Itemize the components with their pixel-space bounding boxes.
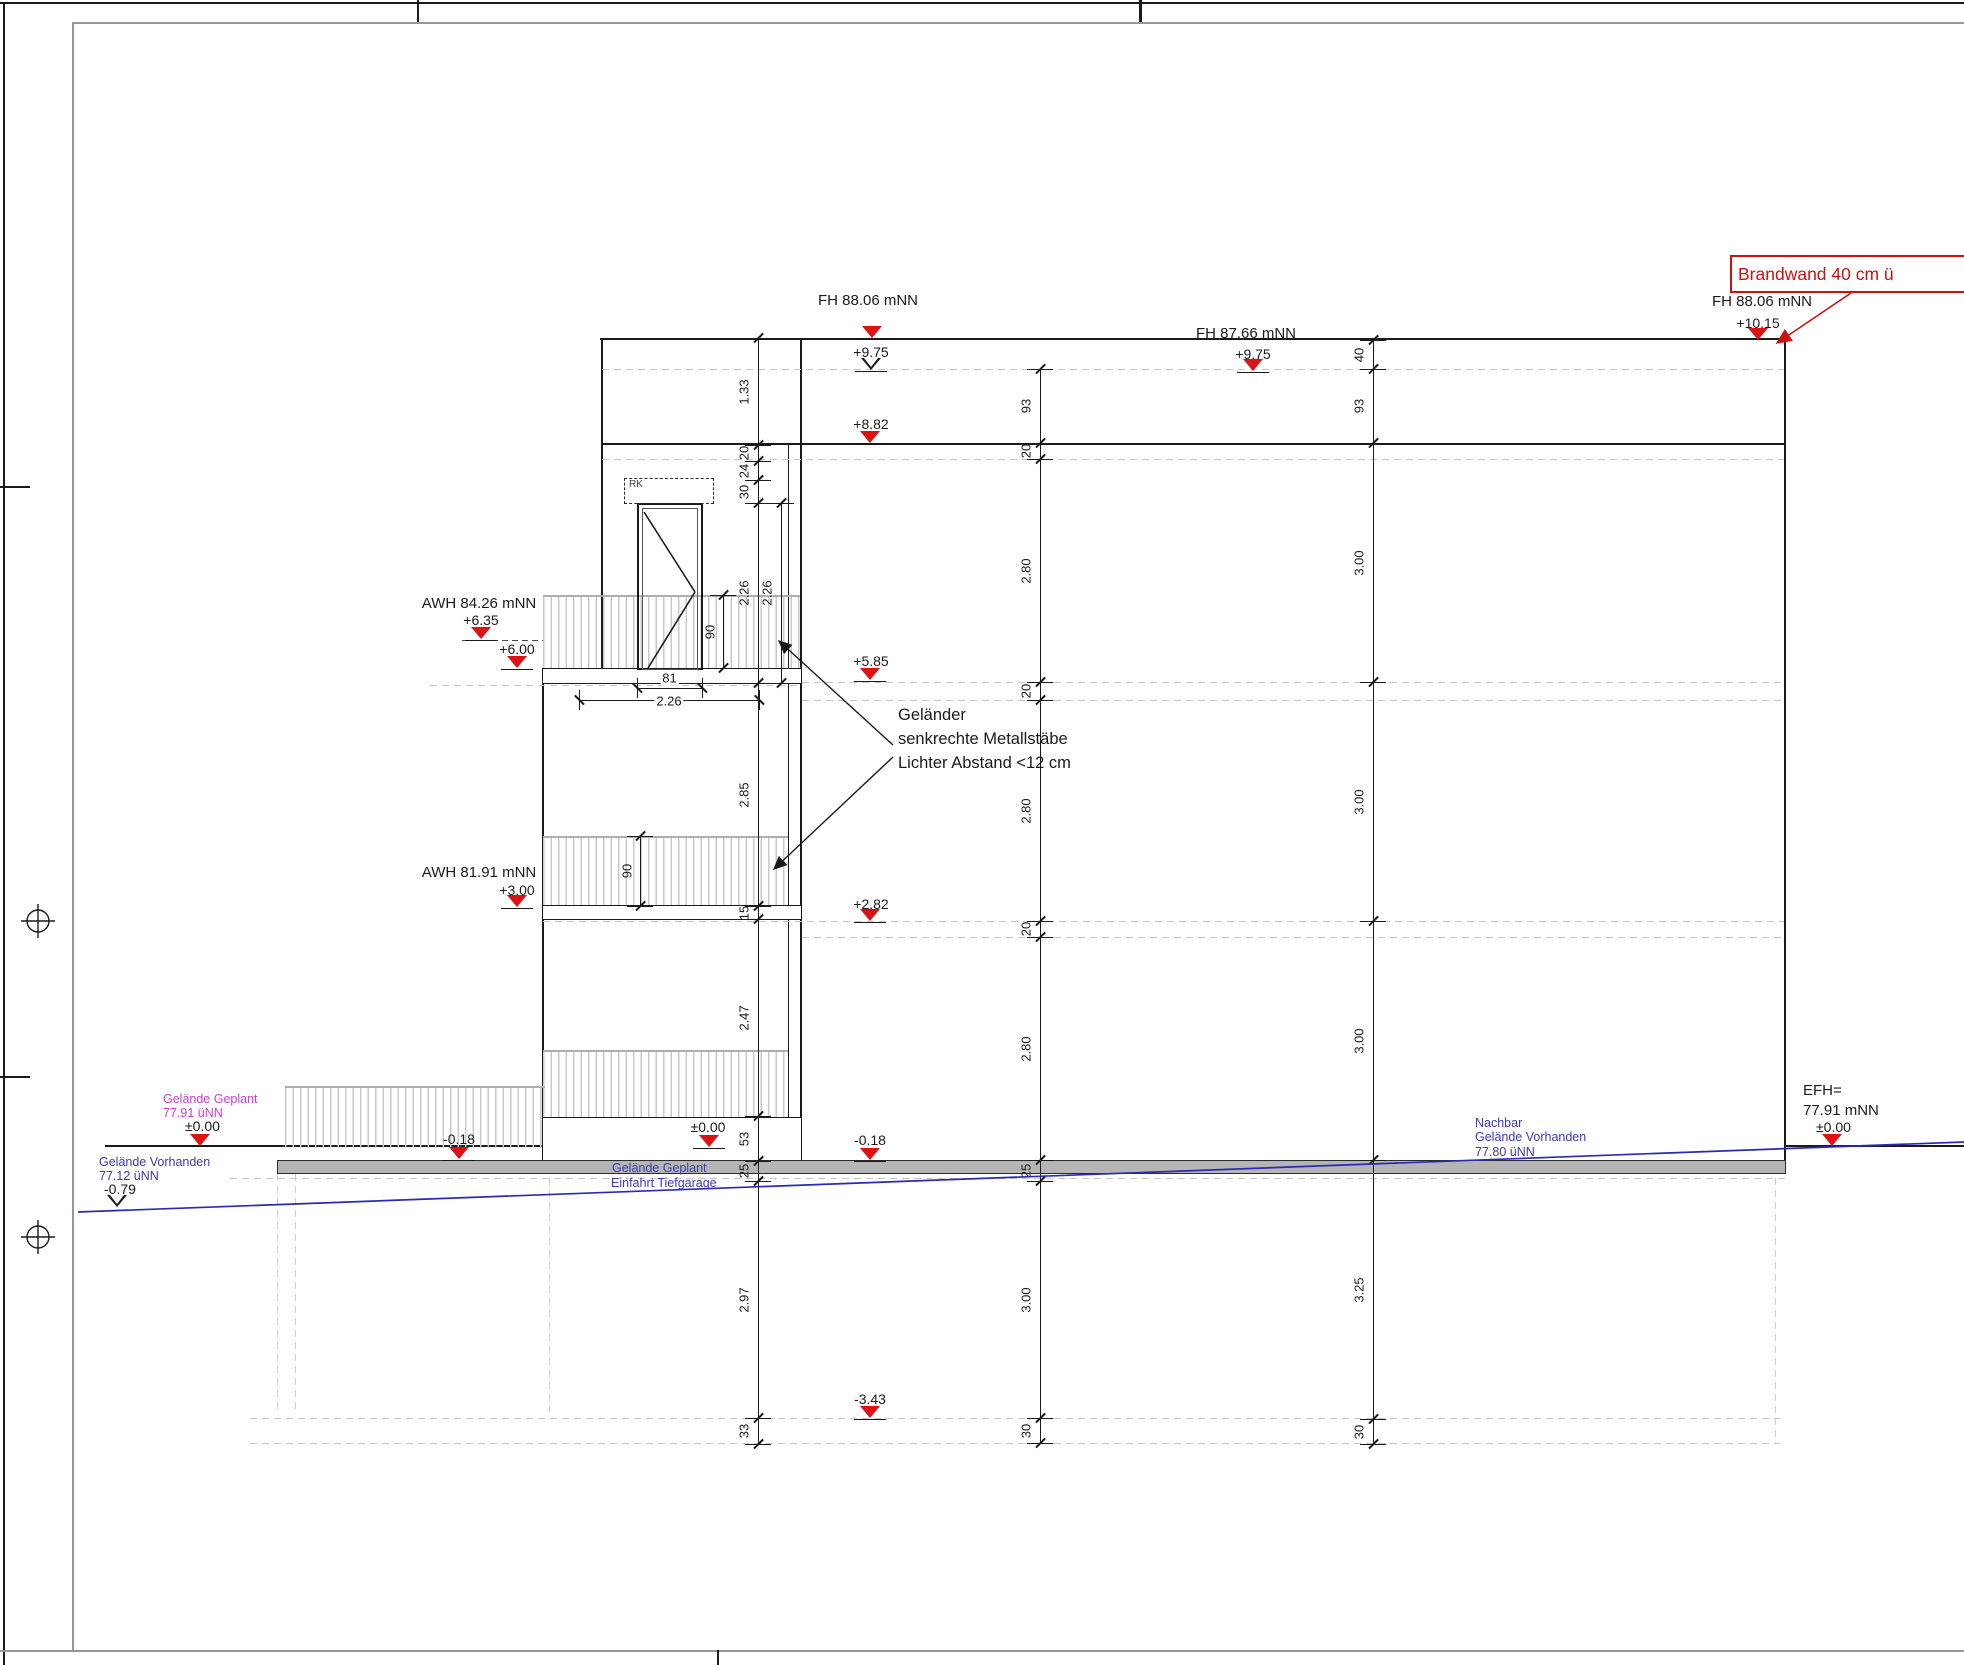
section-drawing-canvas: RK Brandwand 40 cm ü — [0, 0, 1964, 1665]
dim-chain-right-label: 30 — [1352, 1424, 1367, 1438]
level-marker-underline — [465, 640, 497, 642]
dim-chain-middle-label: 20 — [1019, 922, 1034, 936]
mid-balcony-slab — [542, 905, 802, 920]
railing-height-dim-lower-line — [640, 836, 641, 906]
level-marker-underline — [501, 669, 533, 671]
dim-chain-middle-label: 3.00 — [1019, 1287, 1034, 1312]
railing-note-line1: Geländer — [898, 706, 966, 725]
dim-chain-right-label: 93 — [1352, 399, 1367, 413]
dim-chain-middle-label: 30 — [1019, 1423, 1034, 1437]
level-value: +2.82 — [853, 896, 888, 912]
railing-height-dim-upper-line — [723, 595, 724, 668]
balcony-width-dim-ext — [759, 690, 760, 710]
level-label-fh-8766: FH 87.66 mNN — [1196, 325, 1296, 342]
door-width-dim-line — [637, 688, 702, 689]
brandwand-label: Brandwand 40 cm ü — [1738, 264, 1894, 284]
efh-label: EFH= — [1803, 1082, 1842, 1099]
roller-shutter-label: RK — [629, 479, 643, 490]
dim-chain-middle-label: 2.80 — [1019, 798, 1034, 823]
level-value: +5.85 — [853, 653, 888, 669]
efh-elevation: 77.91 mNN — [1803, 1102, 1879, 1119]
roof-line — [600, 338, 1786, 340]
railing-note-leader-2 — [774, 757, 893, 869]
level-marker-triangle — [860, 431, 880, 443]
neighbor-elevation: 77.80 üNN — [1475, 1145, 1535, 1159]
level-value: -0.18 — [443, 1131, 475, 1147]
terrain-planned-label: Gelände Geplant — [163, 1092, 258, 1106]
door-width-dim-ext — [702, 678, 703, 698]
level-dash-282 — [543, 921, 1784, 922]
neighbor-label-line2: Gelände Vorhanden — [1475, 1130, 1586, 1144]
dim-chain-left-label: 2.26 — [737, 580, 752, 605]
level-label-awh-8191: AWH 81.91 mNN — [422, 864, 536, 881]
dim-chain-middle-label: 93 — [1019, 399, 1034, 413]
level-value: ±0.00 — [691, 1119, 726, 1135]
sheet-frame-bottom — [0, 1650, 1964, 1652]
level-value: +10.15 — [1736, 315, 1779, 331]
dim-chain-left-2-label: 2.26 — [760, 580, 775, 605]
garden-fence — [285, 1086, 545, 1148]
level-marker-underline — [693, 1148, 725, 1150]
dim-chain-right-line — [1373, 340, 1374, 1444]
dim-chain-left-label: 2.97 — [737, 1287, 752, 1312]
level-label-fh-8806-right: FH 88.06 mNN — [1712, 293, 1812, 310]
dim-chain-left-label: 53 — [737, 1131, 752, 1145]
level-marker-triangle — [860, 668, 880, 680]
level-marker-triangle — [449, 1147, 469, 1159]
dim-chain-middle-line — [1040, 369, 1041, 1443]
dim-chain-left-label: 2.47 — [737, 1005, 752, 1030]
dim-chain-middle-label: 25 — [1019, 1163, 1034, 1177]
level-marker-underline — [854, 1161, 886, 1163]
balcony-door-frame — [642, 508, 698, 670]
level-marker-triangle — [862, 326, 882, 338]
railing-height-dim-upper-label: 90 — [703, 624, 718, 638]
level-value: ±0.00 — [185, 1118, 220, 1134]
roller-shutter-box: RK — [624, 478, 714, 504]
terrace-slab — [542, 1117, 802, 1161]
dim-chain-middle-label: 20 — [1019, 444, 1034, 458]
neighbor-label-line1: Nachbar — [1475, 1116, 1522, 1130]
level-dash-balcony1 — [430, 685, 802, 686]
level-marker-underline — [855, 371, 887, 373]
page-border-top — [0, 2, 1964, 4]
level-value: +9.75 — [853, 344, 888, 360]
fold-mark-left-2 — [0, 1076, 30, 1078]
level-marker-underline — [854, 1419, 886, 1421]
level-marker-triangle — [471, 627, 491, 639]
basement-right-wall-dash — [1775, 1178, 1776, 1443]
level-marker-underline — [854, 922, 886, 924]
dim-chain-left-label: 20 — [737, 446, 752, 460]
level-value: +9.75 — [1235, 346, 1270, 362]
railing-note-line2: senkrechte Metallstäbe — [898, 730, 1068, 749]
door-width-dim-label: 81 — [660, 671, 678, 686]
sheet-frame-top — [72, 22, 1964, 24]
registration-cross-1 — [21, 904, 55, 938]
mid-balcony-railing — [543, 836, 788, 908]
dim-chain-left-label: 25 — [737, 1164, 752, 1178]
level-dash-262 — [802, 937, 1784, 938]
level-dash-565 — [802, 700, 1784, 701]
ground-line-right — [1786, 1145, 1964, 1147]
dim-chain-right-label: 3.00 — [1352, 789, 1367, 814]
balcony-width-dim-label: 2.26 — [654, 694, 683, 709]
dim-chain-right-label: 40 — [1352, 347, 1367, 361]
level-marker-underline — [1237, 372, 1269, 374]
level-value: -0.18 — [854, 1132, 886, 1148]
dim-chain-left-label: 24 — [737, 463, 752, 477]
dim-chain-right-label: 3.25 — [1352, 1277, 1367, 1302]
level-value: +8.82 — [853, 416, 888, 432]
balcony-width-dim-ext — [579, 690, 580, 710]
dim-chain-left-label: 2.85 — [737, 782, 752, 807]
overlay-lines — [0, 0, 1964, 1665]
terrain-existing-label: Gelände Vorhanden — [99, 1155, 210, 1169]
building-right-wall — [1784, 339, 1786, 1161]
level-value: -3.43 — [854, 1391, 886, 1407]
garage-wall-dash-1 — [277, 1174, 278, 1412]
driveway-label-line2: Einfahrt Tiefgarage — [611, 1176, 717, 1190]
garage-wall-dash-3 — [549, 1178, 550, 1412]
level-marker-underline — [854, 681, 886, 683]
level-marker-triangle — [507, 656, 527, 668]
railing-note-line3: Lichter Abstand <12 cm — [898, 754, 1071, 773]
level-dash-862 — [602, 459, 1784, 460]
attic-ceiling-line — [602, 443, 1784, 445]
level-value: +6.35 — [463, 612, 498, 628]
level-dash-585 — [802, 682, 1784, 683]
level-marker-triangle — [190, 1134, 210, 1146]
fold-mark-bottom — [717, 1650, 719, 1665]
registration-cross-2 — [21, 1220, 55, 1254]
dim-chain-right-label: 3.00 — [1352, 1028, 1367, 1053]
dim-chain-left-label: 30 — [737, 484, 752, 498]
foundation-bottom-dash — [250, 1443, 1780, 1444]
dim-chain-middle-label: 20 — [1019, 684, 1034, 698]
sheet-frame-left — [72, 22, 74, 1651]
level-marker-underline — [501, 908, 533, 910]
fold-mark-top-2 — [1139, 0, 1142, 22]
level-marker-underline — [443, 1160, 475, 1162]
door-width-dim-ext — [637, 678, 638, 698]
level-label-fh-8806-center: FH 88.06 mNN — [818, 292, 918, 309]
basement-top-dash — [230, 1178, 1786, 1179]
dim-chain-left-label: 1.33 — [737, 379, 752, 404]
garage-wall-dash-2 — [295, 1174, 296, 1412]
dim-chain-left-2-line — [781, 503, 782, 683]
level-value: ±0.00 — [1816, 1119, 1851, 1135]
driveway-label-line1: Gelände Geplant — [612, 1161, 707, 1175]
level-value: +6.00 — [499, 641, 534, 657]
level-label-awh-8426: AWH 84.26 mNN — [422, 595, 536, 612]
level-dash-975 — [602, 369, 1784, 370]
dim-chain-middle-label: 2.80 — [1019, 558, 1034, 583]
building-middle-wall — [800, 340, 802, 1161]
basement-floor-dash — [250, 1418, 1780, 1419]
level-marker-triangle — [1822, 1134, 1842, 1146]
level-value: -0.79 — [104, 1181, 136, 1197]
railing-height-dim-lower-label: 90 — [620, 864, 635, 878]
inner-wall-line — [788, 443, 789, 1118]
dim-chain-left-label: 15 — [737, 905, 752, 919]
page-border-left — [3, 2, 5, 1665]
dim-chain-right-label: 3.00 — [1352, 550, 1367, 575]
level-marker-triangle — [860, 1148, 880, 1160]
terrace-railing — [543, 1050, 788, 1120]
level-value: +3.00 — [499, 882, 534, 898]
fold-mark-left-1 — [0, 486, 30, 488]
dim-chain-left-label: 33 — [737, 1424, 752, 1438]
level-marker-triangle — [860, 1406, 880, 1418]
brandwand-annotation-box: Brandwand 40 cm ü — [1730, 255, 1964, 293]
level-marker-triangle — [699, 1135, 719, 1147]
dim-chain-middle-label: 2.80 — [1019, 1036, 1034, 1061]
fold-mark-top-1 — [417, 0, 419, 22]
